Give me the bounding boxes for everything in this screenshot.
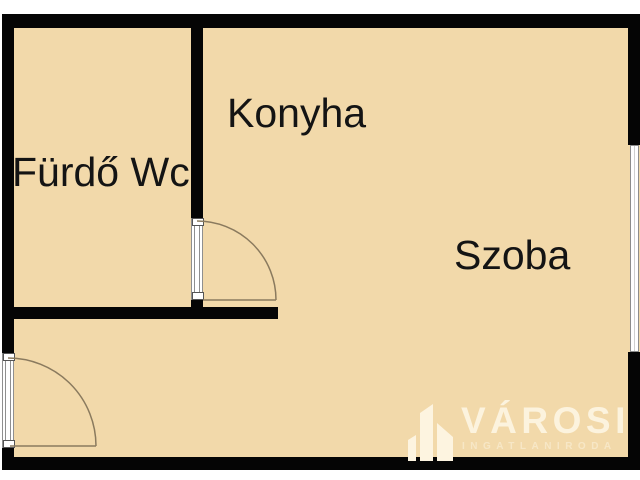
window xyxy=(630,145,639,352)
brand-name: VÁROSI xyxy=(461,402,630,439)
agency-watermark: VÁROSI INGATLANIRODA xyxy=(400,398,640,460)
wall-horizontal-inner xyxy=(2,307,278,319)
door-hinge-block xyxy=(192,292,204,300)
room-label-room: Szoba xyxy=(454,235,570,276)
buildings-icon xyxy=(405,400,460,462)
door-hinge-block xyxy=(3,353,15,361)
bathroom-door xyxy=(191,218,203,300)
room-label-bathroom: Fürdő Wc xyxy=(12,152,190,193)
door-leaf-line xyxy=(194,226,200,292)
door-leaf-line xyxy=(5,361,11,440)
wall-bathroom-kitchen-divider xyxy=(191,28,203,218)
entry-door xyxy=(2,353,14,448)
wall-right-upper xyxy=(628,14,640,145)
window-pane-line xyxy=(634,146,635,351)
brand-tagline: INGATLANIRODA xyxy=(462,442,617,452)
door-hinge-block xyxy=(192,218,204,226)
room-label-kitchen: Konyha xyxy=(227,93,366,134)
wall-top xyxy=(2,14,640,28)
door-hinge-block xyxy=(3,440,15,448)
floorplan: Fürdő Wc Konyha Szoba VÁROSI INGATLANIRO… xyxy=(0,0,640,480)
